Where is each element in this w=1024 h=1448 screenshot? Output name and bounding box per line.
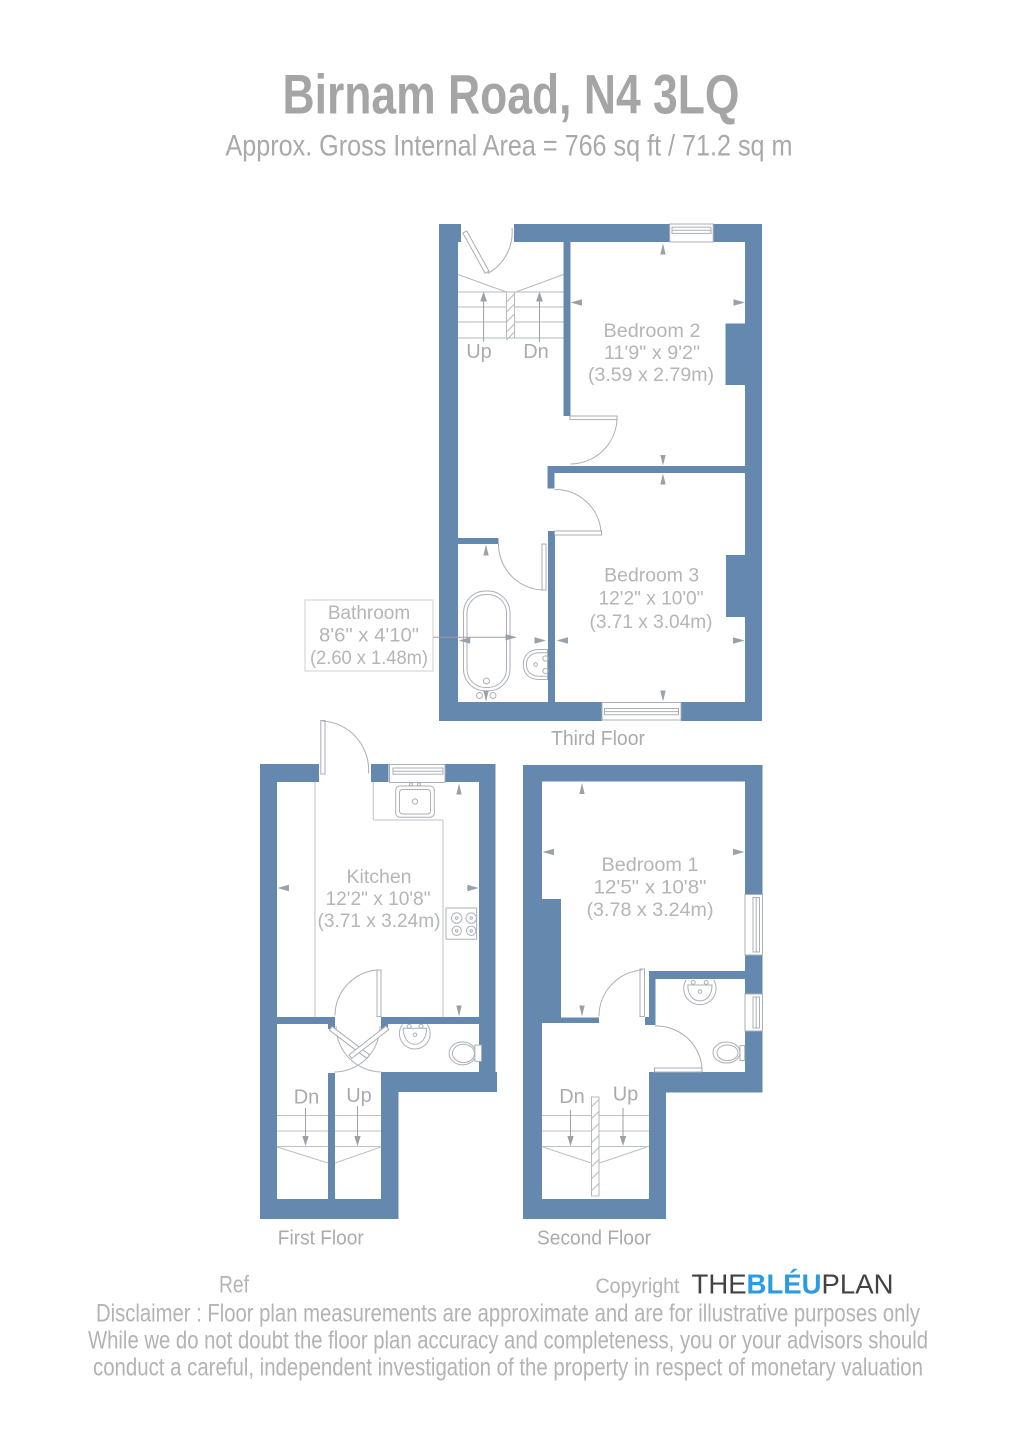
svg-text:Up: Up bbox=[466, 341, 492, 363]
svg-text:Copyright: Copyright bbox=[596, 1275, 680, 1298]
svg-text:conduct a careful, independent: conduct a careful, independent investiga… bbox=[93, 1354, 923, 1382]
svg-text:Dn: Dn bbox=[559, 1086, 585, 1108]
svg-text:12'5" x 10'8": 12'5" x 10'8" bbox=[594, 878, 707, 899]
svg-text:(3.71 x 3.04m): (3.71 x 3.04m) bbox=[590, 612, 713, 633]
svg-text:Bedroom 1: Bedroom 1 bbox=[602, 855, 699, 876]
svg-text:Ref: Ref bbox=[219, 1272, 249, 1299]
svg-text:First Floor: First Floor bbox=[278, 1228, 364, 1250]
svg-text:Second Floor: Second Floor bbox=[537, 1228, 651, 1250]
svg-text:(3.59 x 2.79m): (3.59 x 2.79m) bbox=[588, 365, 714, 386]
svg-text:Third Floor: Third Floor bbox=[551, 728, 645, 750]
svg-text:Disclaimer : Floor plan measur: Disclaimer : Floor plan measurements are… bbox=[96, 1300, 920, 1328]
svg-text:Dn: Dn bbox=[523, 341, 549, 363]
svg-text:Approx. Gross Internal Area =: Approx. Gross Internal Area = 766 sq ft … bbox=[226, 130, 793, 163]
svg-text:Bedroom 2: Bedroom 2 bbox=[604, 321, 701, 342]
svg-text:11'9" x 9'2": 11'9" x 9'2" bbox=[604, 343, 700, 364]
svg-text:Up: Up bbox=[613, 1084, 639, 1106]
svg-text:Birnam Road, N4 3LQ: Birnam Road, N4 3LQ bbox=[283, 63, 740, 126]
svg-text:Bathroom: Bathroom bbox=[328, 603, 410, 624]
svg-text:Dn: Dn bbox=[294, 1087, 320, 1109]
svg-text:(3.78 x 3.24m): (3.78 x 3.24m) bbox=[587, 900, 714, 921]
svg-text:12'2" x 10'0": 12'2" x 10'0" bbox=[599, 589, 704, 610]
svg-text:12'2" x 10'8": 12'2" x 10'8" bbox=[326, 889, 431, 910]
svg-text:(3.71 x 3.24m): (3.71 x 3.24m) bbox=[318, 911, 441, 932]
svg-text:While we do not doubt the floo: While we do not doubt the floor plan acc… bbox=[88, 1327, 928, 1355]
svg-text:(2.60 x 1.48m): (2.60 x 1.48m) bbox=[310, 648, 428, 669]
svg-text:Up: Up bbox=[346, 1085, 372, 1107]
svg-text:Kitchen: Kitchen bbox=[347, 867, 412, 888]
svg-text:8'6" x 4'10": 8'6" x 4'10" bbox=[319, 626, 419, 647]
svg-text:THEBLÉUPLAN: THEBLÉUPLAN bbox=[692, 1269, 894, 1300]
svg-text:Bedroom 3: Bedroom 3 bbox=[604, 566, 699, 587]
